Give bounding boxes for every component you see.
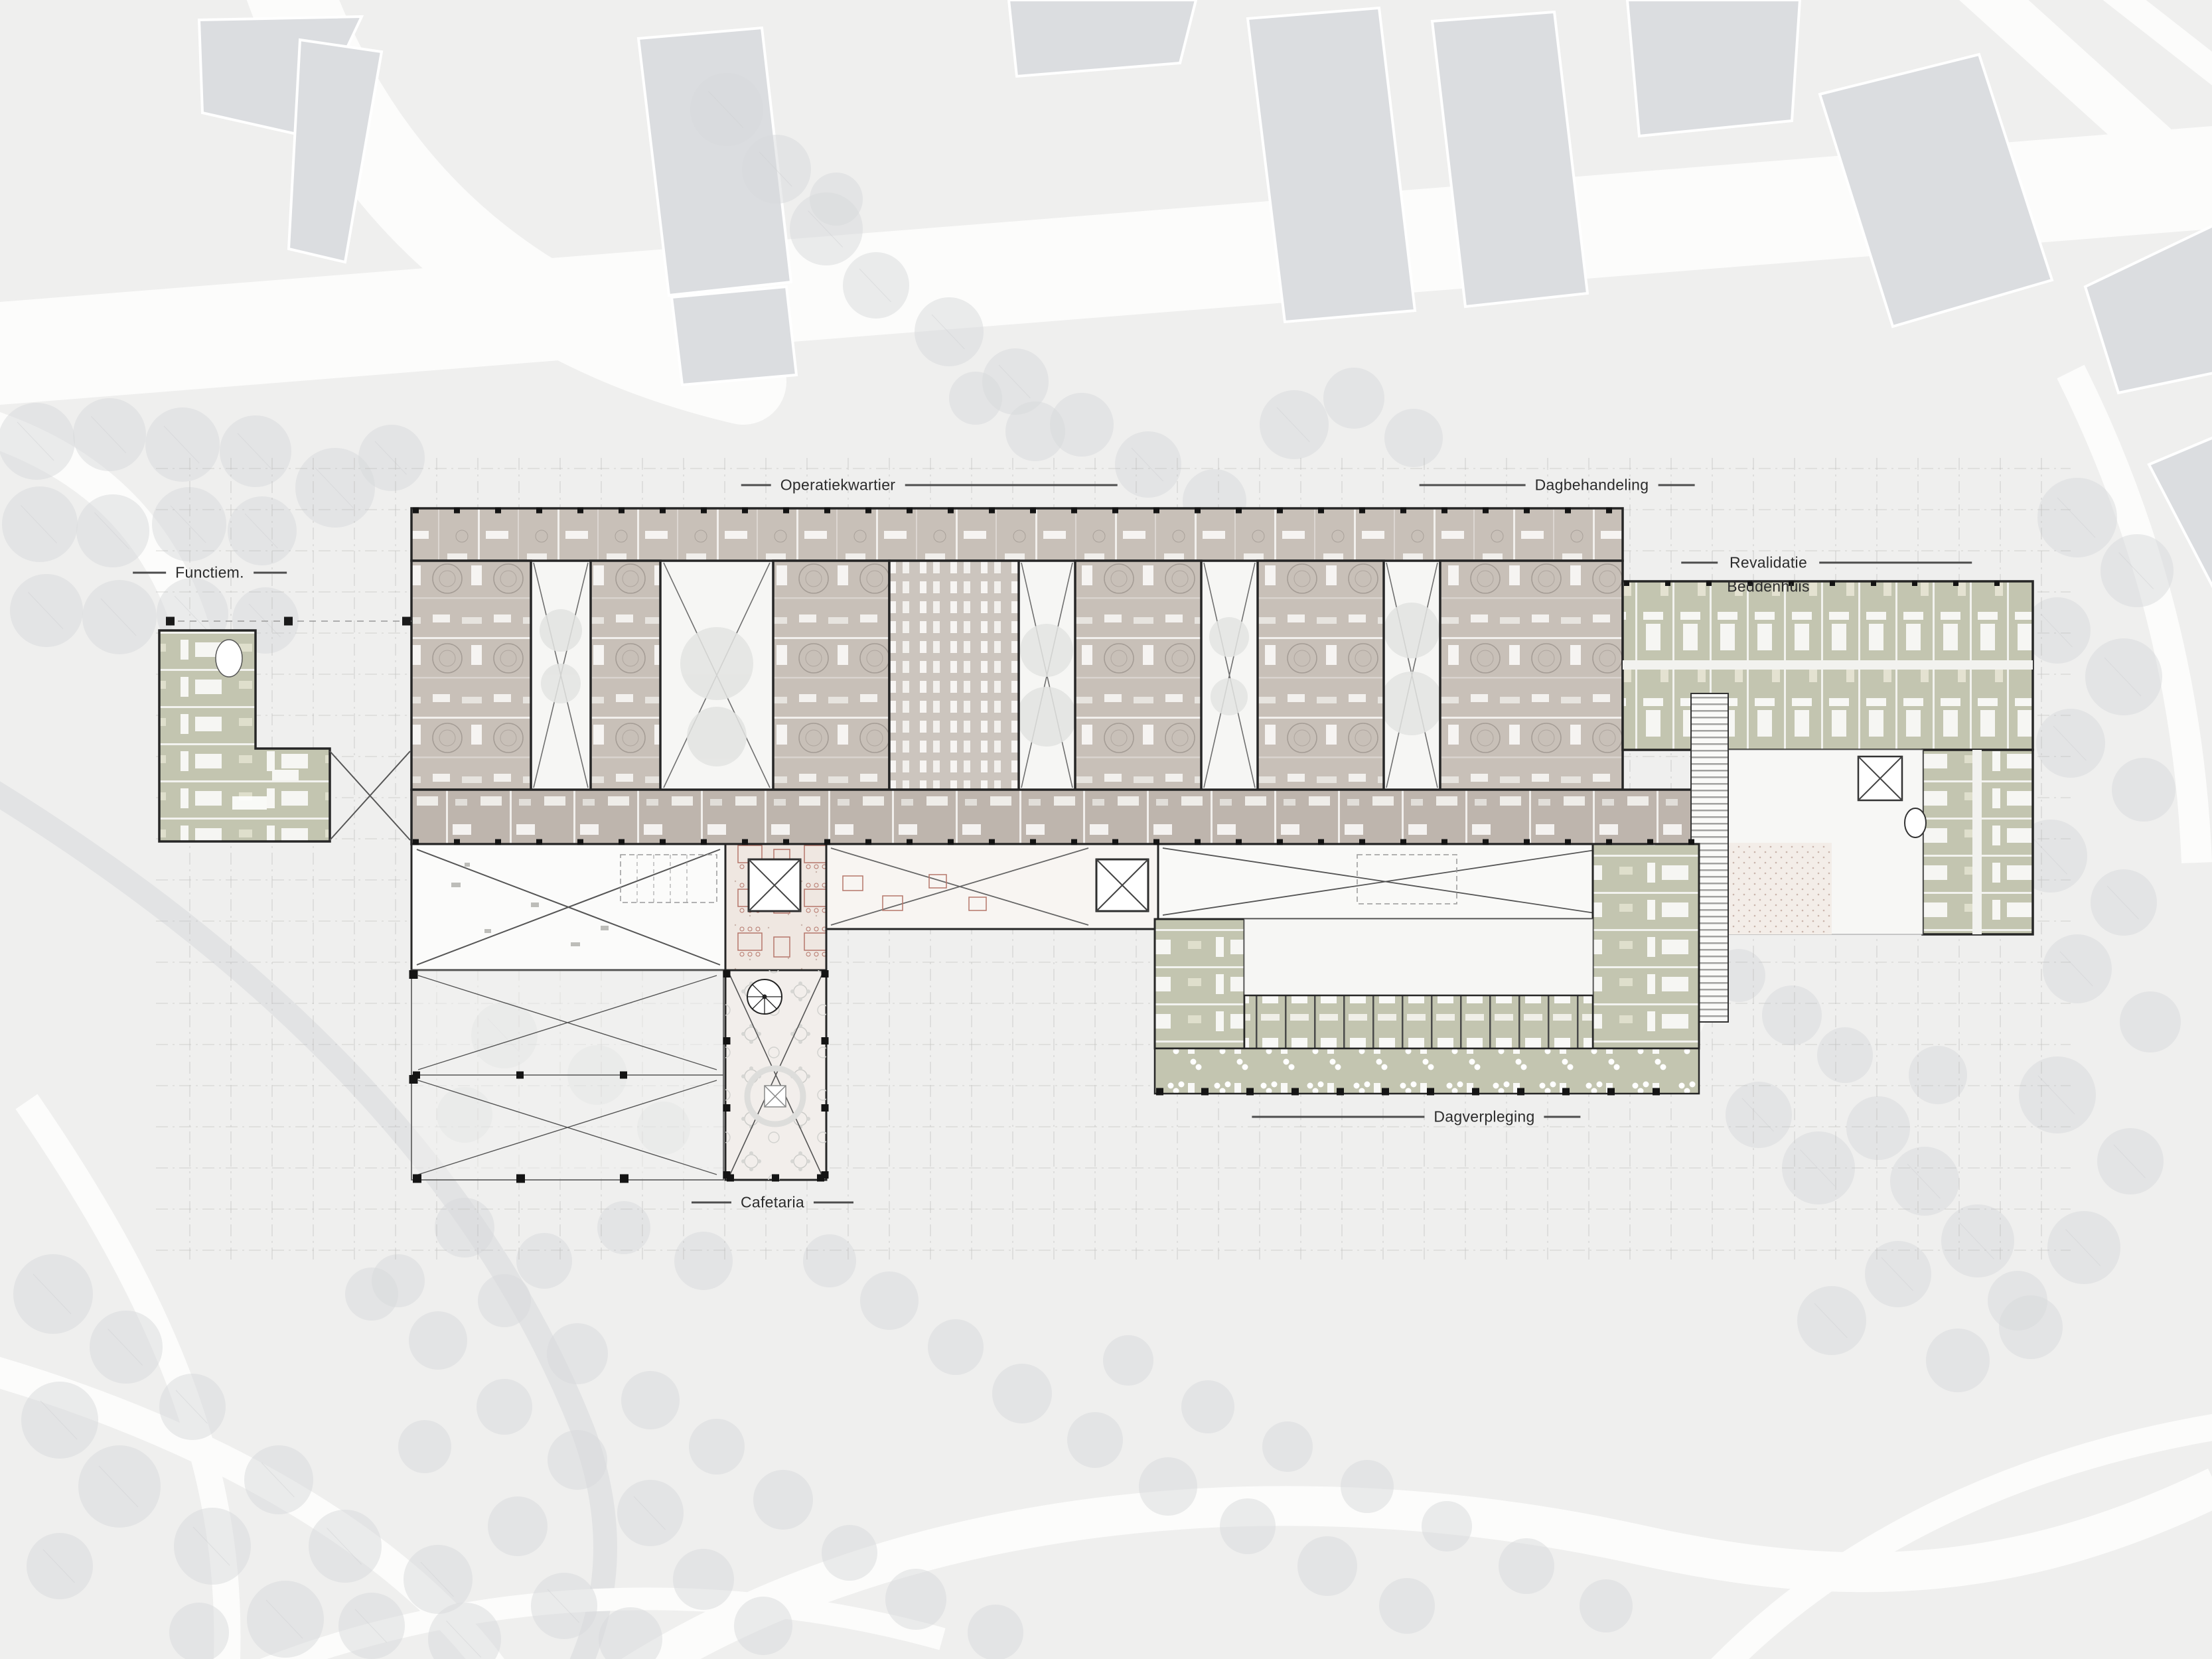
site-plan-drawing: Operatiekwartier Dagbehandeling Revalida… [0,0,2212,1659]
hospital-building [159,508,2033,1180]
dagverpleging-block [1155,844,1699,1094]
label-revalidatie-beddenhuis: Revalidatie Beddenhuis [1681,551,1972,598]
canopy-structure [411,970,723,1180]
patient-bays [1244,995,1593,1048]
leader-line [1658,484,1694,486]
leader-line [1819,561,1972,563]
label-text: Dagverpleging [1434,1108,1534,1126]
entrance-hall [411,844,725,970]
leader-line [905,484,1117,486]
leader-line [692,1202,731,1204]
label-dagverpleging: Dagverpleging [1252,1108,1580,1126]
leader-line [254,572,287,574]
dagverpleging-courtyard [1244,919,1593,995]
label-cafetaria: Cafetaria [692,1194,853,1212]
label-text: Dagbehandeling [1535,476,1649,494]
label-text: Operatiekwartier [780,476,896,494]
main-corridor [411,790,1706,844]
cafetaria-block [725,844,1158,1180]
spiral-stair [747,979,782,1014]
label-operatiekwartier: Operatiekwartier [741,476,1118,494]
leader-line [741,484,771,486]
leader-line [1252,1116,1424,1118]
plan-svg [0,0,2212,1659]
label-text: Cafetaria [741,1194,804,1212]
leader-line [1420,484,1526,486]
label-text: Functiem. [175,564,244,582]
terrace [1155,1048,1699,1094]
leader-line [133,572,166,574]
leader-line [1681,561,1718,563]
functiemetingen-block [159,621,413,841]
leader-line [814,1202,853,1204]
terrace-floor [1728,843,1832,934]
leader-line [1544,1116,1581,1118]
label-functiemetingen: Functiem. [133,564,287,582]
label-text: Beddenhuis [1727,575,1810,599]
label-dagbehandeling: Dagbehandeling [1420,476,1695,494]
label-text: Revalidatie [1730,551,1807,575]
